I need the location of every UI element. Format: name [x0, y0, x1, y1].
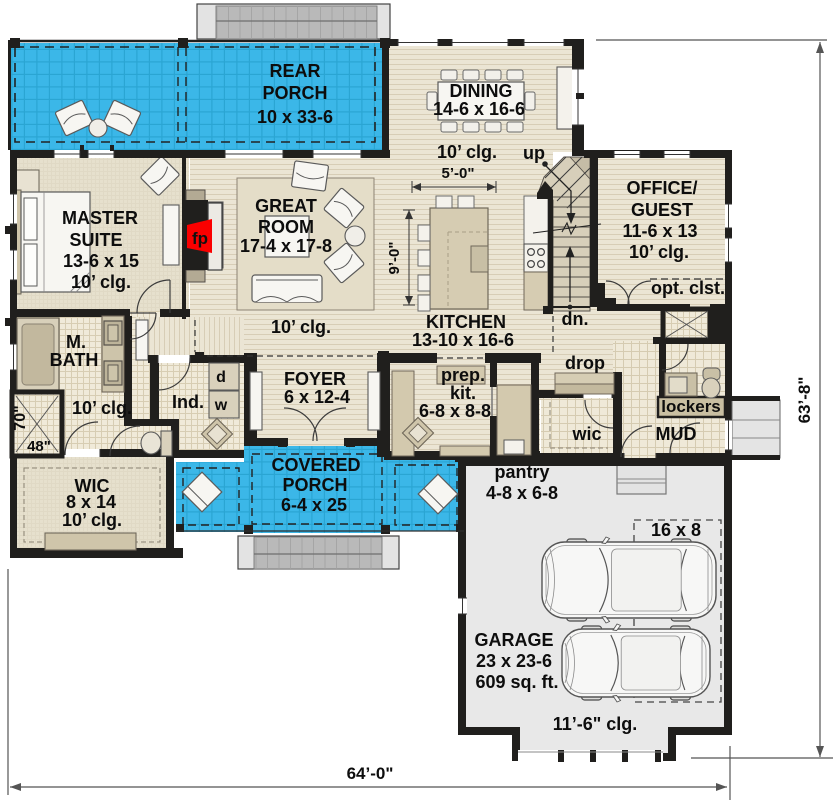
svg-text:13-6 x 15: 13-6 x 15 — [63, 251, 139, 271]
svg-text:23 x 23-6: 23 x 23-6 — [476, 651, 552, 671]
svg-text:w: w — [214, 397, 228, 414]
svg-text:FOYER: FOYER — [284, 369, 346, 389]
svg-text:64’-0": 64’-0" — [347, 764, 394, 783]
svg-text:10’ clg.: 10’ clg. — [71, 272, 131, 292]
svg-text:drop: drop — [565, 353, 605, 373]
svg-text:ROOM: ROOM — [258, 217, 314, 237]
svg-text:48": 48" — [27, 438, 51, 455]
svg-text:d: d — [216, 369, 226, 386]
svg-text:10’ clg.: 10’ clg. — [72, 398, 132, 418]
svg-text:BATH: BATH — [50, 350, 99, 370]
svg-text:M.: M. — [66, 332, 86, 352]
svg-text:11’-6" clg.: 11’-6" clg. — [553, 714, 638, 734]
svg-text:MUD: MUD — [656, 424, 697, 444]
svg-text:lockers: lockers — [661, 397, 721, 416]
svg-text:13-10 x 16-6: 13-10 x 16-6 — [412, 330, 514, 350]
svg-text:8 x 14: 8 x 14 — [66, 492, 116, 512]
svg-text:wic: wic — [571, 424, 601, 444]
svg-text:6 x 12-4: 6 x 12-4 — [284, 387, 350, 407]
svg-text:6-4 x 25: 6-4 x 25 — [281, 495, 347, 515]
svg-text:DINING: DINING — [450, 81, 513, 101]
svg-text:kit.: kit. — [450, 383, 476, 403]
svg-text:REAR: REAR — [269, 61, 320, 81]
svg-text:PORCH: PORCH — [262, 83, 327, 103]
svg-text:5’-0": 5’-0" — [442, 165, 475, 182]
svg-text:OFFICE/: OFFICE/ — [627, 178, 698, 198]
svg-text:up: up — [523, 143, 545, 163]
svg-text:PORCH: PORCH — [282, 475, 347, 495]
svg-text:10 x 33-6: 10 x 33-6 — [257, 107, 333, 127]
svg-text:4-8 x 6-8: 4-8 x 6-8 — [486, 483, 558, 503]
svg-text:11-6 x 13: 11-6 x 13 — [622, 221, 697, 241]
svg-text:GARAGE: GARAGE — [474, 630, 553, 650]
svg-text:6-8 x 8-8: 6-8 x 8-8 — [419, 401, 491, 421]
svg-text:10’ clg.: 10’ clg. — [437, 142, 497, 162]
svg-text:10’ clg.: 10’ clg. — [271, 317, 331, 337]
svg-text:9’-0": 9’-0" — [386, 242, 403, 275]
svg-text:609 sq. ft.: 609 sq. ft. — [475, 672, 558, 692]
svg-text:70": 70" — [12, 405, 29, 430]
svg-text:14-6 x 16-6: 14-6 x 16-6 — [433, 99, 525, 119]
svg-text:10’ clg.: 10’ clg. — [62, 510, 122, 530]
svg-text:16 x 8: 16 x 8 — [651, 520, 701, 540]
svg-text:Ind.: Ind. — [172, 392, 204, 412]
svg-text:prep.: prep. — [441, 365, 485, 385]
svg-text:KITCHEN: KITCHEN — [426, 312, 506, 332]
svg-text:COVERED: COVERED — [271, 455, 360, 475]
svg-text:pantry: pantry — [494, 462, 549, 482]
svg-text:63’-8": 63’-8" — [795, 377, 814, 424]
svg-text:fp: fp — [192, 229, 208, 248]
svg-text:opt. clst.: opt. clst. — [651, 278, 725, 298]
svg-text:dn.: dn. — [562, 309, 589, 329]
svg-text:GUEST: GUEST — [631, 200, 693, 220]
svg-text:MASTER: MASTER — [62, 208, 138, 228]
svg-text:GREAT: GREAT — [255, 196, 317, 216]
svg-text:SUITE: SUITE — [69, 230, 122, 250]
svg-text:17-4 x 17-8: 17-4 x 17-8 — [240, 236, 332, 256]
svg-text:10’ clg.: 10’ clg. — [629, 242, 689, 262]
